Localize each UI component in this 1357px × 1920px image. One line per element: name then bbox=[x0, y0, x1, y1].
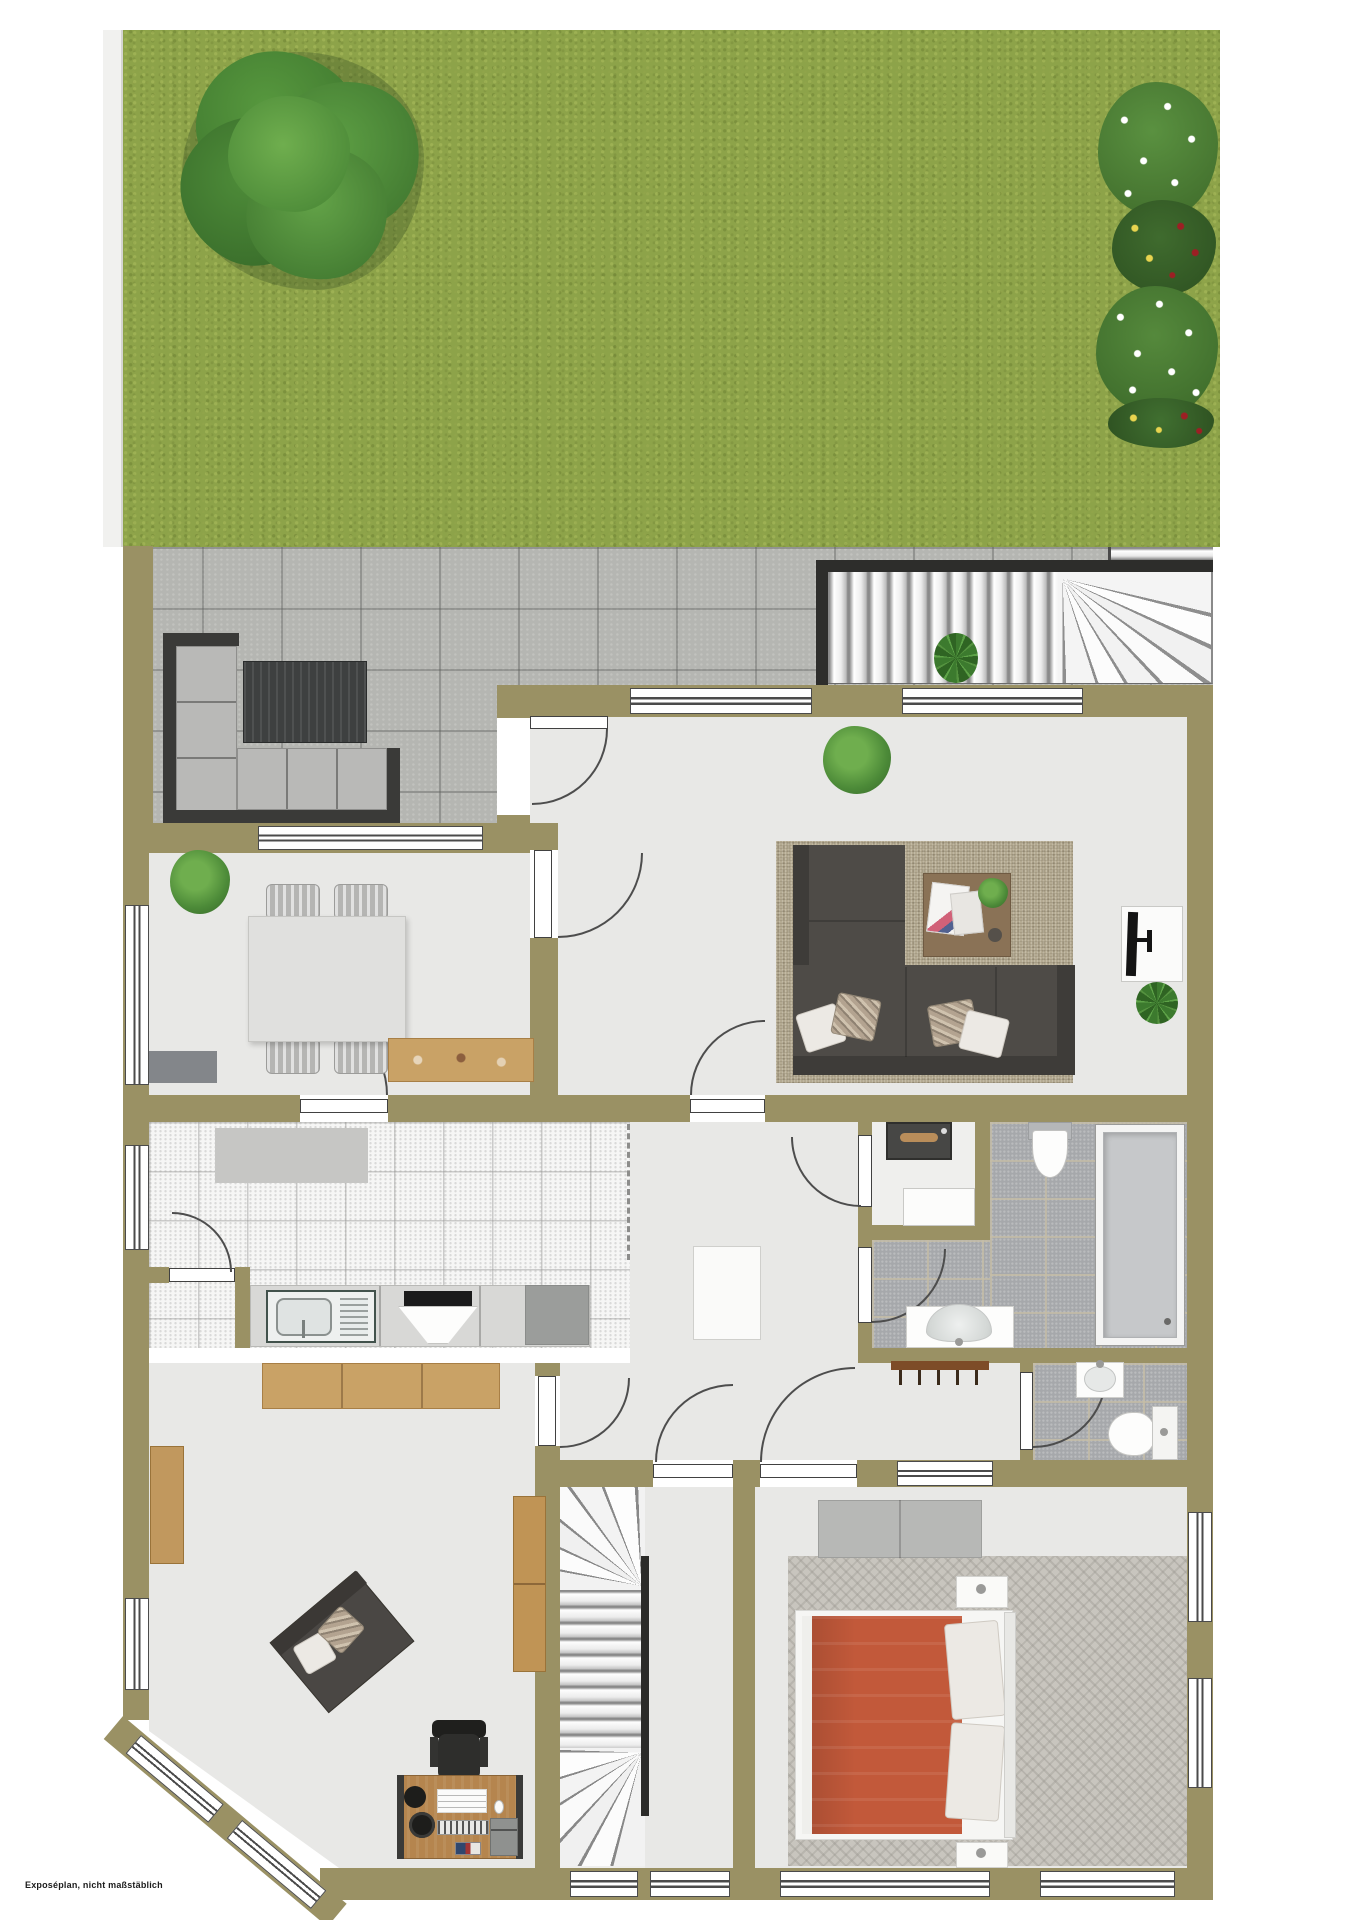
tree-canopy-icon bbox=[228, 96, 350, 212]
desk-keyboard bbox=[437, 1820, 489, 1835]
dining-sideboard bbox=[388, 1038, 534, 1082]
nightstand-lamp bbox=[976, 1584, 986, 1594]
desk-lamp-head bbox=[404, 1786, 426, 1808]
wc-flush-button bbox=[1160, 1428, 1168, 1436]
terrace-door-leaf bbox=[530, 716, 608, 729]
dining-chair bbox=[266, 1038, 320, 1074]
interior-stair-winder-bottom bbox=[560, 1748, 645, 1866]
washbasin-tap bbox=[955, 1338, 963, 1346]
dining-living-door-leaf bbox=[534, 850, 552, 938]
garden-boundary-strip bbox=[103, 30, 123, 547]
sofa-armrest bbox=[1057, 965, 1075, 1075]
kitchen-door-leaf bbox=[300, 1099, 388, 1113]
outdoor-sofa-seats-horizontal bbox=[237, 748, 387, 810]
window-south-bedroom-2 bbox=[1040, 1871, 1175, 1897]
sofa-main-backrest bbox=[793, 1056, 1075, 1075]
bathroom-door-leaf bbox=[858, 1247, 872, 1323]
tv-stand-base bbox=[1147, 930, 1152, 952]
exterior-stair-parapet-top bbox=[816, 560, 1213, 572]
interior-stair-run bbox=[560, 1590, 645, 1748]
desk-mouse bbox=[494, 1800, 504, 1814]
utility-stove-knob bbox=[941, 1128, 947, 1134]
kitchen-appliance bbox=[525, 1285, 589, 1345]
outdoor-coffee-table bbox=[243, 661, 367, 743]
bed-pillow bbox=[944, 1620, 1006, 1720]
outdoor-sofa-back-bottom bbox=[163, 810, 400, 823]
bedroom-door-leaf bbox=[760, 1464, 857, 1478]
shower-drain bbox=[1164, 1318, 1171, 1325]
window-office-west bbox=[125, 1598, 149, 1690]
wall-north-living bbox=[497, 685, 1213, 717]
plant-by-tv-icon bbox=[1136, 982, 1178, 1024]
shower-tray-inner bbox=[1103, 1132, 1177, 1338]
nightstand-lamp bbox=[976, 1848, 986, 1858]
flower-bush-red-yellow bbox=[1112, 200, 1216, 294]
kitchen-mat bbox=[215, 1128, 368, 1183]
patio-plant-icon bbox=[934, 633, 978, 683]
desk-magazine bbox=[455, 1842, 481, 1855]
wc-tap bbox=[1096, 1360, 1104, 1368]
wall-pantry-top-stub bbox=[149, 1267, 169, 1283]
coat-rack-bar bbox=[891, 1361, 989, 1370]
wc-toilet-bowl bbox=[1108, 1412, 1156, 1456]
desk-side-rail bbox=[397, 1775, 404, 1859]
wardrobe-seam bbox=[899, 1500, 901, 1558]
outdoor-sofa-seats-vertical bbox=[176, 646, 237, 816]
office-chair-seat bbox=[438, 1734, 480, 1780]
dining-table bbox=[248, 916, 406, 1042]
window-living-north-2 bbox=[902, 688, 1083, 714]
office-wardrobe bbox=[150, 1446, 184, 1564]
window-bedroom-east-2 bbox=[1188, 1678, 1212, 1788]
bed-pillow bbox=[945, 1722, 1006, 1822]
wall-living-hall bbox=[558, 1095, 1187, 1122]
window-living-north-1 bbox=[630, 688, 812, 714]
sofa-seam bbox=[809, 920, 905, 922]
wall-west-patio bbox=[123, 546, 153, 823]
bed-duvet bbox=[810, 1616, 962, 1834]
window-south-stairwell bbox=[570, 1871, 638, 1897]
interior-stair-winder-top bbox=[560, 1487, 645, 1590]
dining-chair bbox=[334, 884, 388, 920]
throw-pillow-patterned bbox=[830, 992, 882, 1042]
stairwell-door-leaf bbox=[653, 1464, 733, 1478]
outdoor-sofa-back-left bbox=[163, 633, 176, 823]
outdoor-sofa-armrest bbox=[387, 748, 400, 823]
window-south-bedroom bbox=[780, 1871, 990, 1897]
dining-chair bbox=[334, 1038, 388, 1074]
kitchen-hall-open-passage bbox=[627, 1124, 631, 1260]
kitchen-drainer bbox=[340, 1298, 368, 1336]
utility-cabinet bbox=[903, 1188, 975, 1226]
terrace-door-opening bbox=[497, 718, 530, 815]
bed-headboard bbox=[1004, 1612, 1016, 1838]
bed-sheet-edge bbox=[802, 1616, 812, 1834]
wc-door-leaf bbox=[1020, 1372, 1033, 1450]
wall-pantry-east bbox=[235, 1267, 250, 1348]
office-printer bbox=[490, 1818, 518, 1856]
sofa-seam bbox=[905, 967, 907, 1057]
desk-paper bbox=[437, 1789, 487, 1813]
office-chair-armrest bbox=[480, 1737, 488, 1767]
window-dining-north bbox=[258, 826, 483, 850]
kitchen-tap bbox=[302, 1320, 305, 1338]
window-dining-west bbox=[125, 905, 149, 1085]
dining-chair bbox=[266, 884, 320, 920]
flower-bush-white bbox=[1098, 82, 1218, 218]
office-tall-shelf bbox=[513, 1496, 546, 1672]
flower-bush-white bbox=[1096, 286, 1218, 416]
coffee-table-tray bbox=[988, 928, 1002, 942]
stair-landing-floor bbox=[645, 1487, 733, 1868]
wall-utility-south bbox=[858, 1225, 990, 1240]
hall-cabinet bbox=[693, 1246, 761, 1340]
office-door-leaf bbox=[538, 1376, 556, 1446]
window-bedroom-east-1 bbox=[1188, 1512, 1212, 1622]
coat-rack-hooks bbox=[891, 1370, 989, 1385]
plan-caption: Exposéplan, nicht maßstäblich bbox=[25, 1880, 163, 1890]
exterior-stair-parapet-left bbox=[816, 560, 828, 686]
wall-bedroom-west bbox=[733, 1487, 755, 1868]
bedroom-second-opening bbox=[897, 1461, 993, 1486]
dining-doormat bbox=[149, 1051, 217, 1083]
exterior-stair-winder bbox=[1058, 572, 1213, 684]
window-south-landing bbox=[650, 1871, 730, 1897]
wall-utility-bath bbox=[975, 1122, 990, 1240]
window-kitchen-west bbox=[125, 1145, 149, 1250]
wc-washbasin-bowl bbox=[1084, 1366, 1116, 1392]
utility-stove-handle bbox=[900, 1133, 938, 1142]
desk-lamp-base bbox=[409, 1812, 435, 1838]
stair-handrail bbox=[641, 1556, 649, 1816]
floor-plan-scene: Exposéplan, nicht maßstäblich bbox=[0, 0, 1357, 1920]
cooktop-hob bbox=[404, 1291, 472, 1306]
office-sideboard bbox=[262, 1363, 500, 1409]
office-chair-armrest bbox=[430, 1737, 438, 1767]
flower-bush-red-yellow bbox=[1108, 398, 1214, 448]
hall-living-door-leaf bbox=[690, 1099, 765, 1113]
